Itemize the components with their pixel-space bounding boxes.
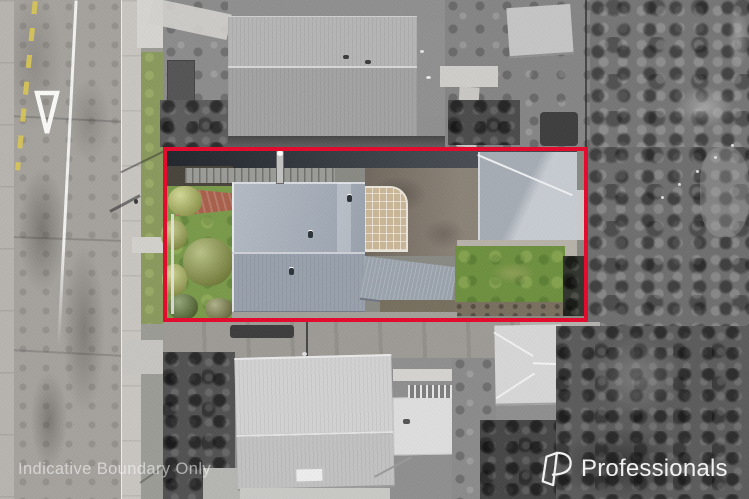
aerial-photo: Indicative Boundary Only Professionals [0,0,749,499]
bottom-neighbor-roof-upper [234,354,393,435]
backyard-dark-objects [448,100,520,145]
road [14,0,121,499]
pergola-slats [408,385,452,398]
bottom-neighbor-wing-roof [392,396,454,455]
white-speck [426,76,431,79]
top-neighbor-shrubs [160,100,230,147]
backyard-dark-objects [540,112,578,146]
property-boundary-overlay [163,147,588,322]
hip-ridge-line [493,332,533,357]
white-speck [420,50,424,53]
bottom-hedge-band [230,325,294,338]
white-speck [661,196,664,199]
tree-canopy-light-patch [728,8,749,68]
white-speck [714,156,717,159]
roof-vent [365,60,371,64]
give-way-road-marking [34,90,60,136]
grass-berm-green [141,52,163,324]
far-left-footpath [0,0,14,499]
watermark-text: Indicative Boundary Only [18,460,211,479]
tree-canopy-light-patch [676,86,734,128]
brand-logo: Professionals [538,449,728,489]
roof-vent [343,55,349,59]
vehicle-crossing-bottom [123,340,168,374]
backyard-path-horizontal [440,66,498,87]
bottom-neighbor-roof-lower [236,433,394,491]
hip-garage-roof [494,324,562,405]
tree-canopy-light-patch [592,336,682,416]
top-neighbor-roof-upper [228,16,417,69]
bottom-neighbor-roof [234,354,394,491]
tree-canopy-light-patch [700,147,749,237]
power-pole [134,199,138,204]
power-line-vertical [585,0,587,147]
vehicle-crossing-mid [132,237,163,253]
white-speck [731,144,734,147]
brand-logo-text: Professionals [581,455,728,483]
roof-vent [403,419,410,424]
top-neighbor-roof-lower [228,68,417,138]
backyard-garage-roof [506,4,573,58]
top-neighbor-eave-shadow [228,136,445,147]
roof-vent-box [295,468,323,483]
trees-top-right [590,0,749,150]
white-speck [678,183,681,186]
white-speck [696,170,699,173]
professionals-p-logo-icon [538,449,572,489]
bottom-path [240,488,390,499]
hip-ridge-line [496,373,536,400]
